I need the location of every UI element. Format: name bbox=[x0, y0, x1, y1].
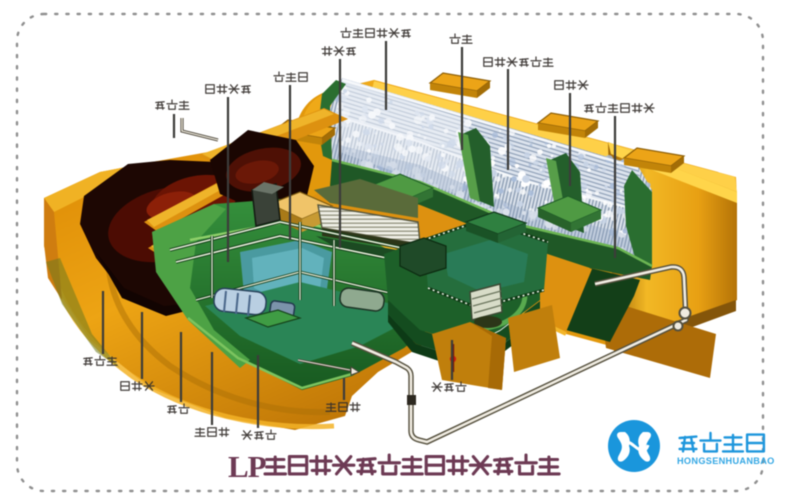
svg-text:LP: LP bbox=[228, 449, 267, 484]
svg-text:HONGSENHUANBAO: HONGSENHUANBAO bbox=[677, 456, 775, 466]
